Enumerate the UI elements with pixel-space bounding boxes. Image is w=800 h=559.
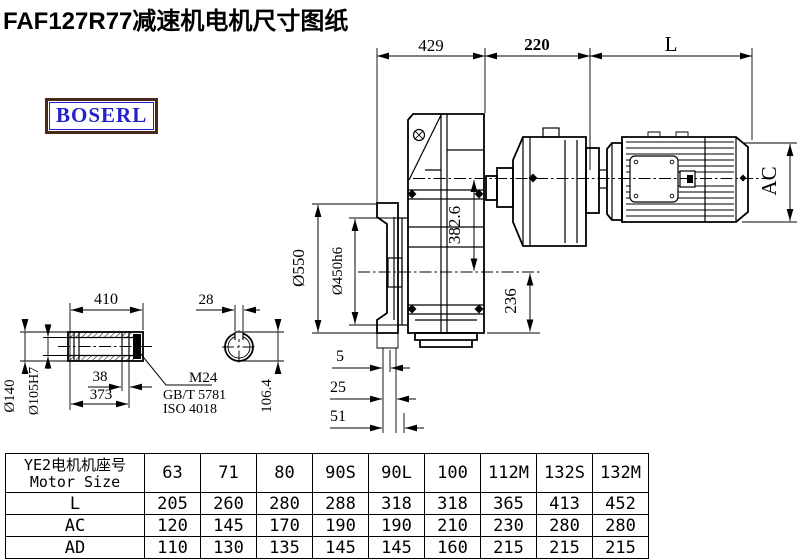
size-col-header: 90L [369, 454, 425, 493]
dim-5: 5 [336, 348, 344, 365]
dim-value-cell: 135 [257, 537, 313, 559]
size-col-header: 132S [537, 454, 593, 493]
dim-value-cell: 365 [481, 493, 537, 515]
dim-450h6: Ø450h6 [330, 246, 346, 295]
dim-value-cell: 280 [593, 515, 649, 537]
table-row-L: L 205 260 280 288 318 318 365 413 452 [6, 493, 649, 515]
dim-value-cell: 110 [145, 537, 201, 559]
row-label: L [6, 493, 145, 515]
dim-value-cell: 210 [425, 515, 481, 537]
dim-373: 373 [90, 387, 113, 403]
dim-value-cell: 215 [537, 537, 593, 559]
dim-429: 429 [418, 36, 444, 55]
label-m24: M24 [189, 370, 218, 386]
table-row-AD: AD 110 130 135 145 145 160 215 215 215 [6, 537, 649, 559]
motor-size-header-zh: YE2电机机座号 [6, 456, 144, 474]
dim-550: Ø550 [289, 249, 308, 287]
dim-value-cell: 145 [201, 515, 257, 537]
dim-382-6: 382.6 [445, 206, 464, 244]
dim-value-cell: 413 [537, 493, 593, 515]
motor-size-header-en: Motor Size [6, 474, 144, 491]
row-label: AD [6, 537, 145, 559]
dim-38: 38 [93, 369, 108, 385]
dim-value-cell: 190 [369, 515, 425, 537]
label-gbt5781: GB/T 5781 [163, 388, 226, 403]
dim-value-cell: 452 [593, 493, 649, 515]
dim-106-4: 106.4 [259, 379, 275, 413]
dim-236: 236 [501, 288, 520, 314]
dim-value-cell: 145 [313, 537, 369, 559]
motor [607, 132, 748, 222]
table-row-AC: AC 120 145 170 190 190 210 230 280 280 [6, 515, 649, 537]
dim-value-cell: 288 [313, 493, 369, 515]
dim-value-cell: 280 [537, 515, 593, 537]
dim-value-cell: 190 [313, 515, 369, 537]
dim-410: 410 [94, 291, 118, 308]
centerlines [58, 179, 768, 365]
label-iso4018: ISO 4018 [163, 402, 217, 417]
dim-value-cell: 160 [425, 537, 481, 559]
size-col-header: 90S [313, 454, 369, 493]
size-col-header: 112M [481, 454, 537, 493]
dim-value-cell: 120 [145, 515, 201, 537]
size-col-header: 100 [425, 454, 481, 493]
row-label: AC [6, 515, 145, 537]
size-col-header: 63 [145, 454, 201, 493]
dim-value-cell: 205 [145, 493, 201, 515]
dim-value-cell: 130 [201, 537, 257, 559]
dim-value-cell: 215 [481, 537, 537, 559]
dim-value-cell: 170 [257, 515, 313, 537]
dim-value-cell: 318 [369, 493, 425, 515]
dim-value-cell: 145 [369, 537, 425, 559]
dim-value-cell: 280 [257, 493, 313, 515]
table-header-row: YE2电机机座号 Motor Size 63 71 80 90S 90L 100… [6, 454, 649, 493]
size-col-header: 71 [201, 454, 257, 493]
dim-value-cell: 215 [593, 537, 649, 559]
dim-105h7: Ø105H7 [27, 367, 42, 415]
dim-L: L [665, 32, 678, 56]
r77-reducer [486, 128, 607, 246]
dim-AC: AC [757, 166, 781, 195]
dim-51: 51 [330, 408, 346, 425]
dim-25: 25 [330, 379, 346, 396]
size-col-header: 132M [593, 454, 649, 493]
dim-value-cell: 318 [425, 493, 481, 515]
dim-140: Ø140 [2, 379, 18, 412]
dim-28: 28 [199, 292, 214, 308]
dimension-labels: 429 220 L AC Ø550 Ø450h6 382.6 236 5 25 … [2, 32, 781, 425]
motor-size-header-cell: YE2电机机座号 Motor Size [6, 454, 145, 493]
size-col-header: 80 [257, 454, 313, 493]
motor-size-table: YE2电机机座号 Motor Size 63 71 80 90S 90L 100… [5, 453, 649, 559]
dim-value-cell: 230 [481, 515, 537, 537]
dim-value-cell: 260 [201, 493, 257, 515]
dim-220: 220 [524, 35, 550, 54]
